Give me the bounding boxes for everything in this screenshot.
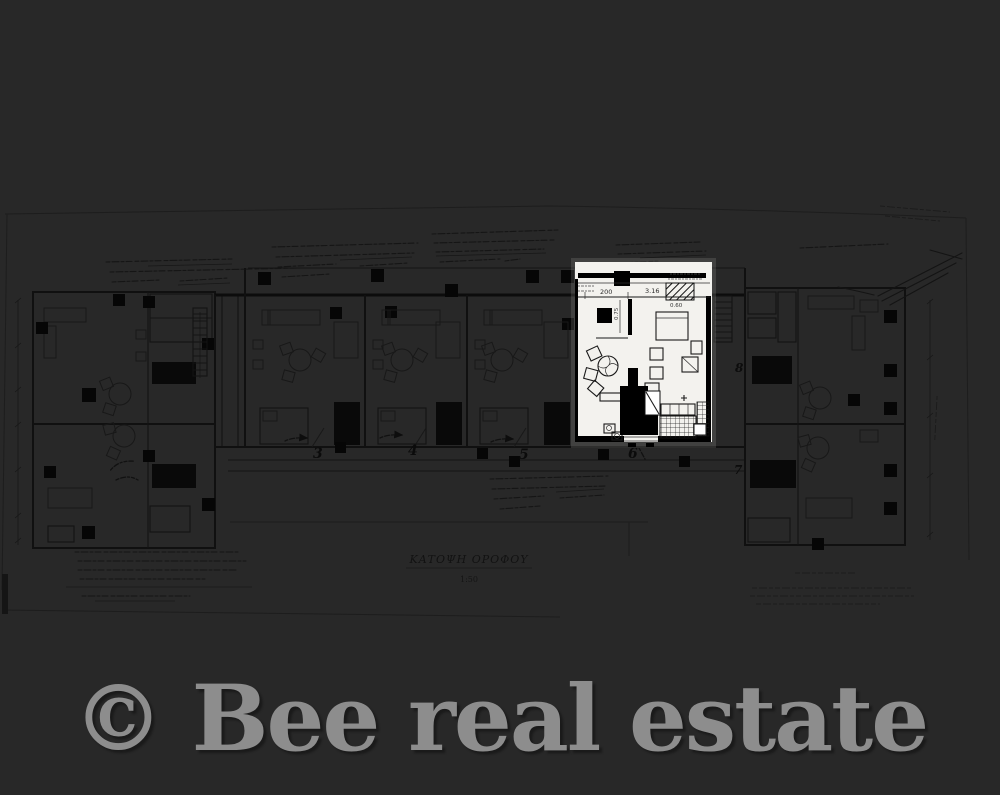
unit-5-interior [475,310,570,447]
floorplan-photo: 3 4 5 6 8 7 [0,0,1000,795]
unit-3-label: 3 [313,446,323,462]
plan-title: ΚΑΤΟΨΗ ΟΡΟΦΟΥ [409,553,530,566]
dim-0-60: 0.60 [670,303,683,309]
title-block: ΚΑΤΟΨΗ ΟΡΟΦΟΥ 1:50 [406,553,532,584]
unit-7-label: 7 [734,463,743,477]
unit-4-label: 4 [408,443,418,459]
left-wing [15,292,215,548]
watermark-text: © Bee real estate [0,674,1000,765]
unit-5-label: 5 [519,447,529,463]
unit-4-interior [373,310,462,447]
right-wing [745,288,937,550]
dim-0-75: 0.75 [614,307,620,320]
right-staircase: 8 7 [714,296,744,477]
highlighted-unit-6: 200 3.16 0.60 0.75 [571,258,716,448]
plan-scale: 1:50 [460,575,478,584]
unit-6-label: 6 [628,446,638,462]
dim-200: 200 [600,288,612,296]
unit-3-interior [253,310,360,447]
dim-3-16: 3.16 [645,287,659,295]
unit-8-label: 8 [735,361,744,375]
